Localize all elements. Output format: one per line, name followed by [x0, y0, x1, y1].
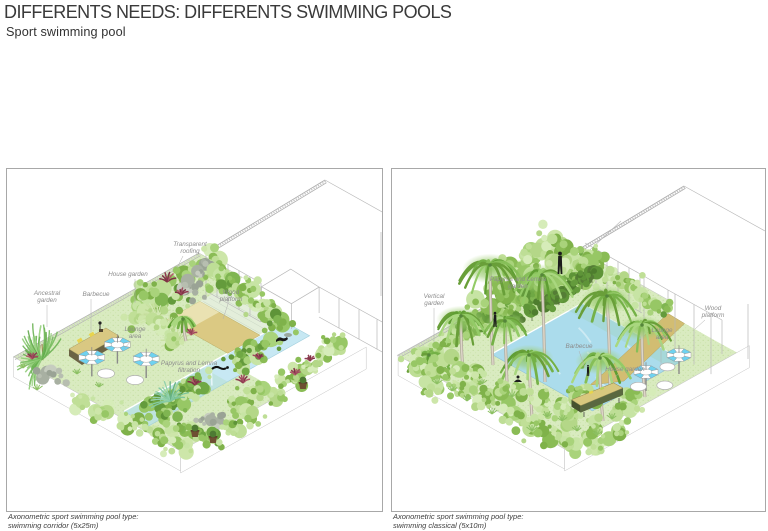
svg-text:Lounge: Lounge [124, 326, 146, 333]
svg-text:garden: garden [37, 297, 57, 304]
svg-text:Transparent: Transparent [173, 241, 207, 248]
svg-text:Wood: Wood [705, 305, 722, 312]
svg-text:House garden: House garden [108, 271, 148, 278]
svg-text:area: area [656, 334, 669, 341]
svg-text:Vertical: Vertical [424, 293, 445, 300]
svg-text:Papyrus and Lemna: Papyrus and Lemna [490, 276, 547, 283]
svg-text:House garden: House garden [605, 366, 645, 373]
svg-text:area: area [129, 333, 142, 340]
svg-text:platform: platform [701, 312, 725, 319]
svg-text:Wood: Wood [223, 289, 240, 296]
svg-text:garden: garden [424, 300, 444, 307]
svg-text:Papyrus and Lemna: Papyrus and Lemna [161, 360, 218, 367]
svg-text:Barbecue: Barbecue [566, 343, 593, 350]
svg-text:roofing: roofing [180, 248, 200, 255]
svg-text:Lounge: Lounge [651, 327, 673, 334]
svg-text:filtration: filtration [178, 367, 201, 374]
svg-text:platform: platform [219, 296, 243, 303]
svg-text:Barbecue: Barbecue [83, 291, 110, 298]
svg-text:garden: garden [508, 283, 528, 290]
svg-text:Ancestral: Ancestral [33, 290, 61, 297]
